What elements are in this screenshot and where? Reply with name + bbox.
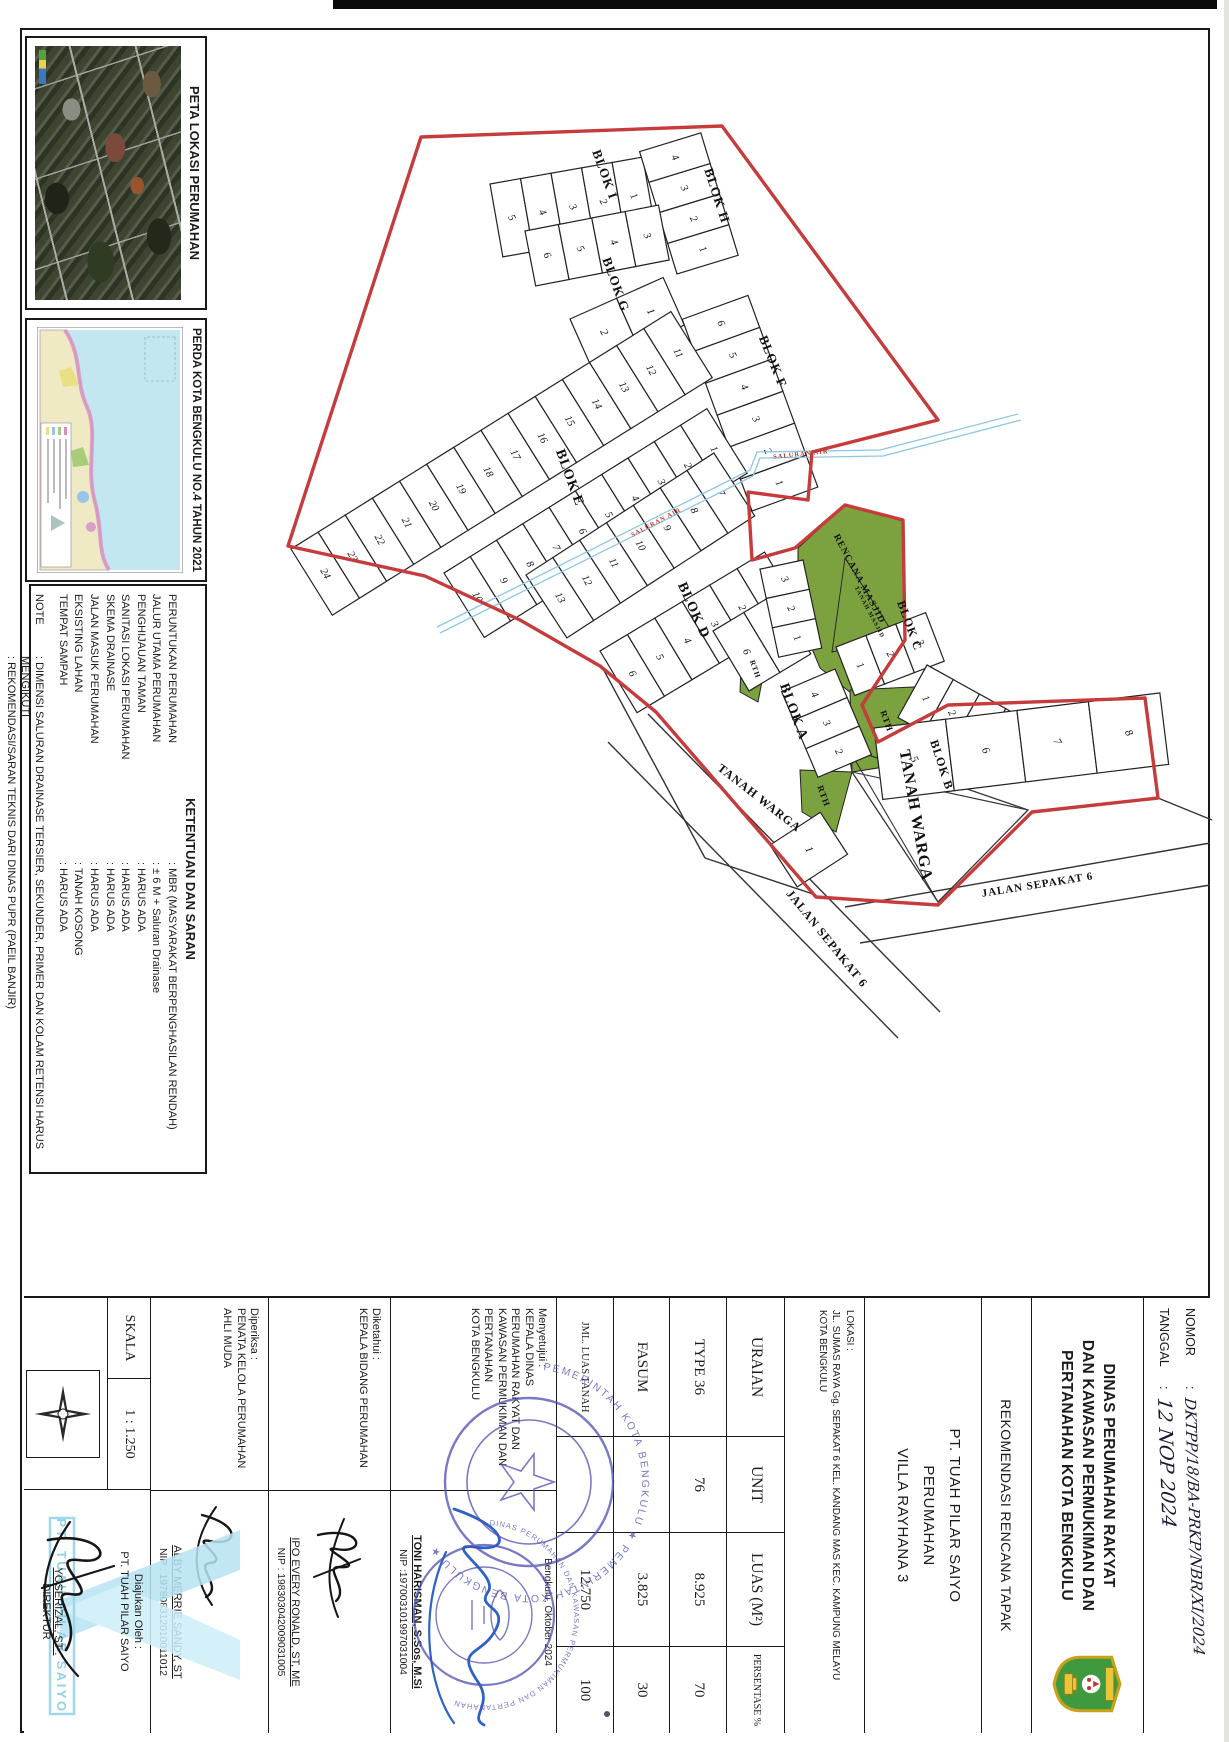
ketentuan-list: PERUNTUKAN PERUMAHAN: MBR (MASYARAKAT BE… xyxy=(55,594,179,1164)
lokasi-text: LOKASI :JL. SUMAS RAYA Gg. SEPAKAT 6 KEL… xyxy=(816,1310,857,1721)
diperiksa-name-cell: ALBY MERRIE SANDY, ST NIP : 197808312010… xyxy=(151,1490,268,1733)
diajukan-title: DIREKTUR xyxy=(40,1583,52,1639)
agency-name: DINAS PERUMAHAN RAKYATDAN KAWASAN PERMUK… xyxy=(1056,1298,1119,1653)
diajukan-heading: Diajukan Oleh :PT. TUAH PILAR SAIYO xyxy=(117,1490,144,1733)
ketentuan-row-value: : HARUS ADA xyxy=(55,862,70,1164)
table-cell: 12.750 xyxy=(557,1532,614,1646)
location-map-panel: PETA LOKASI PERUMAHAN xyxy=(25,36,207,310)
table-cell xyxy=(557,1436,614,1532)
table-cell: TYPE 36 xyxy=(671,1298,728,1436)
note-line: : REKOMENDASI/SARAN TEKNIS DARI DINAS PU… xyxy=(4,656,18,1164)
diperiksa-heading: Diperiksa :PENATA KELOLA PERUMAHANAHLI M… xyxy=(151,1298,268,1490)
table-cell: 30 xyxy=(614,1646,671,1733)
skala-value: 1 : 1.250 xyxy=(108,1379,150,1489)
diperiksa-nip: NIP : 197808312010011012 xyxy=(157,1491,168,1733)
skala-diajukan-cell: SKALA 1 : 1.250 xyxy=(24,1298,151,1733)
table-header: URAIAN xyxy=(727,1298,784,1436)
aerial-photo xyxy=(35,46,181,300)
menyetujui-cell: Menyetujui :KEPALA DINASPERUMAHAN RAKYAT… xyxy=(391,1298,557,1733)
ketentuan-row-label: PERUNTUKAN PERUMAHAN xyxy=(164,594,179,856)
note-lines: : DIMENSI SALURAN DRAINASE TERSIER, SEKU… xyxy=(4,656,46,1164)
diketahui-cell: Diketahui :KEPALA BIDANG PERUMAHAN IPO E… xyxy=(269,1298,391,1733)
ketentuan-panel: KETENTUAN DAN SARAN PERUNTUKAN PERUMAHAN… xyxy=(29,584,207,1174)
ketentuan-row-value: : HARUS ADA xyxy=(102,862,117,1164)
table-cell: 8.925 xyxy=(671,1532,728,1646)
diajukan-name: YOSERIZAL, ST . xyxy=(52,1568,64,1656)
ketentuan-row-label: JALAN MASUK PERUMAHAN xyxy=(86,594,101,856)
ketentuan-row-value: : HARUS ADA xyxy=(86,862,101,1164)
table-cell: 100 xyxy=(557,1646,614,1733)
ketentuan-title: KETENTUAN DAN SARAN xyxy=(183,594,201,1164)
ketentuan-row-label: SKEMA DRAINASE xyxy=(102,594,117,856)
lokasi-cell: LOKASI :JL. SUMAS RAYA Gg. SEPAKAT 6 KEL… xyxy=(785,1298,865,1733)
diperiksa-cell: Diperiksa :PENATA KELOLA PERUMAHANAHLI M… xyxy=(151,1298,269,1733)
perda-map-panel: PERDA KOTA BENGKULU NO.4 TAHUN 2021 xyxy=(25,318,207,582)
signature-alby xyxy=(192,1497,258,1697)
diketahui-name: IPO EVERY RONALD, ST, ME xyxy=(289,1491,301,1733)
drawing-sheet: PETA LOKASI PERUMAHAN PERDA KOTA BENGKUL… xyxy=(0,0,1229,1742)
agency-crest xyxy=(1053,1653,1123,1715)
table-cell: JML. LUAS TANAH xyxy=(557,1298,614,1436)
doc-title: REKOMENDASI RENCANA TAPAK xyxy=(999,1399,1015,1632)
table-header: PERSENTASE % xyxy=(727,1646,784,1733)
note-label: NOTE xyxy=(4,594,46,650)
area-table: URAIANUNITLUAS (M²)PERSENTASE %TYPE 3676… xyxy=(557,1298,784,1733)
diketahui-heading: Diketahui :KEPALA BIDANG PERUMAHAN xyxy=(269,1298,390,1490)
diketahui-nip: NIP : 198303042009031005 xyxy=(275,1491,286,1733)
ketentuan-row-label: JALUR UTAMA PERUMAHAN xyxy=(149,594,164,856)
menyetujui-heading: Menyetujui :KEPALA DINASPERUMAHAN RAKYAT… xyxy=(391,1298,556,1490)
developer-cell: PT. TUAH PILAR SAIYOPERUMAHANVILLA RAYHA… xyxy=(865,1298,982,1733)
skala-compass-area: SKALA 1 : 1.250 xyxy=(24,1298,150,1490)
location-map-title: PETA LOKASI PERUMAHAN xyxy=(187,38,205,308)
ketentuan-row-value: : HARUS ADA xyxy=(118,862,133,1164)
note-line: : DIMENSI SALURAN DRAINASE TERSIER, SEKU… xyxy=(18,656,46,1164)
ketentuan-row-value: : TANAH KOSONG xyxy=(71,862,86,1164)
ketentuan-note: NOTE : DIMENSI SALURAN DRAINASE TERSIER,… xyxy=(4,594,46,1164)
table-header: LUAS (M²) xyxy=(727,1532,784,1646)
table-cell: 3.825 xyxy=(614,1532,671,1646)
aerial-scalebar xyxy=(39,50,46,84)
tanggal-label: TANGGAL xyxy=(1151,1308,1177,1386)
table-cell: 70 xyxy=(671,1646,728,1733)
ketentuan-row-value: : ± 6 M + Saluran Drainase xyxy=(149,862,164,1164)
agency-header-cell: DINAS PERUMAHAN RAKYATDAN KAWASAN PERMUK… xyxy=(1032,1298,1144,1733)
diketahui-name-cell: IPO EVERY RONALD, ST, ME NIP : 198303042… xyxy=(269,1490,390,1733)
table-header: UNIT xyxy=(727,1436,784,1532)
diperiksa-name: ALBY MERRIE SANDY, ST xyxy=(171,1491,183,1733)
perda-legend xyxy=(41,423,71,567)
scanned-document-page: PETA LOKASI PERUMAHAN PERDA KOTA BENGKUL… xyxy=(0,0,1229,1742)
menyetujui-nip: NIP :197003101997031004 xyxy=(397,1491,408,1733)
signature-ipo xyxy=(310,1497,380,1697)
menyetujui-name-cell: Bengkulu, Oktober 2024 TONI HARISMAN, S.… xyxy=(391,1490,556,1733)
area-table-cell: URAIANUNITLUAS (M²)PERSENTASE %TYPE 3676… xyxy=(557,1298,785,1733)
place-date: Bengkulu, Oktober 2024 xyxy=(542,1491,553,1733)
skala-label: SKALA xyxy=(108,1298,150,1379)
title-block: NOMOR : DKTPP/18/BA-PRKP/NBR/XI/2024 TAN… xyxy=(24,1296,1210,1733)
ketentuan-row-label: SANITASI LOKASI PERUMAHAN xyxy=(118,594,133,856)
compass-box xyxy=(26,1370,100,1458)
nomor-label: NOMOR xyxy=(1177,1308,1203,1386)
menyetujui-name: TONI HARISMAN, S.Sos, M.Si xyxy=(411,1491,423,1733)
doc-title-cell: REKOMENDASI RENCANA TAPAK xyxy=(982,1298,1032,1733)
table-cell: FASUM xyxy=(614,1298,671,1436)
perda-map-title: PERDA KOTA BENGKULU NO.4 TAHUN 2021 xyxy=(190,320,205,580)
ketentuan-row-label: TEMPAT SAMPAH xyxy=(55,594,70,856)
nomor-tanggal-cell: NOMOR : DKTPP/18/BA-PRKP/NBR/XI/2024 TAN… xyxy=(1144,1298,1210,1733)
developer-name: PT. TUAH PILAR SAIYOPERUMAHANVILLA RAYHA… xyxy=(889,1298,967,1733)
table-cell: 76 xyxy=(671,1436,728,1532)
table-cell xyxy=(614,1436,671,1532)
ketentuan-row-label: PENGHIJAUAN TAMAN xyxy=(133,594,148,856)
diajukan-area: PT. TUAH PILAR SAIYO Diajukan Oleh :PT. … xyxy=(24,1490,150,1733)
perda-zoning-map xyxy=(37,327,183,573)
ketentuan-row-value: : MBR (MASYARAKAT BERPENGHASILAN RENDAH) xyxy=(164,862,179,1164)
ketentuan-row-value: : HARUS ADA xyxy=(133,862,148,1164)
ketentuan-row-label: EKSISTING LAHAN xyxy=(71,594,86,856)
signature-toni xyxy=(426,1497,546,1727)
compass-rose-icon xyxy=(31,1382,95,1446)
